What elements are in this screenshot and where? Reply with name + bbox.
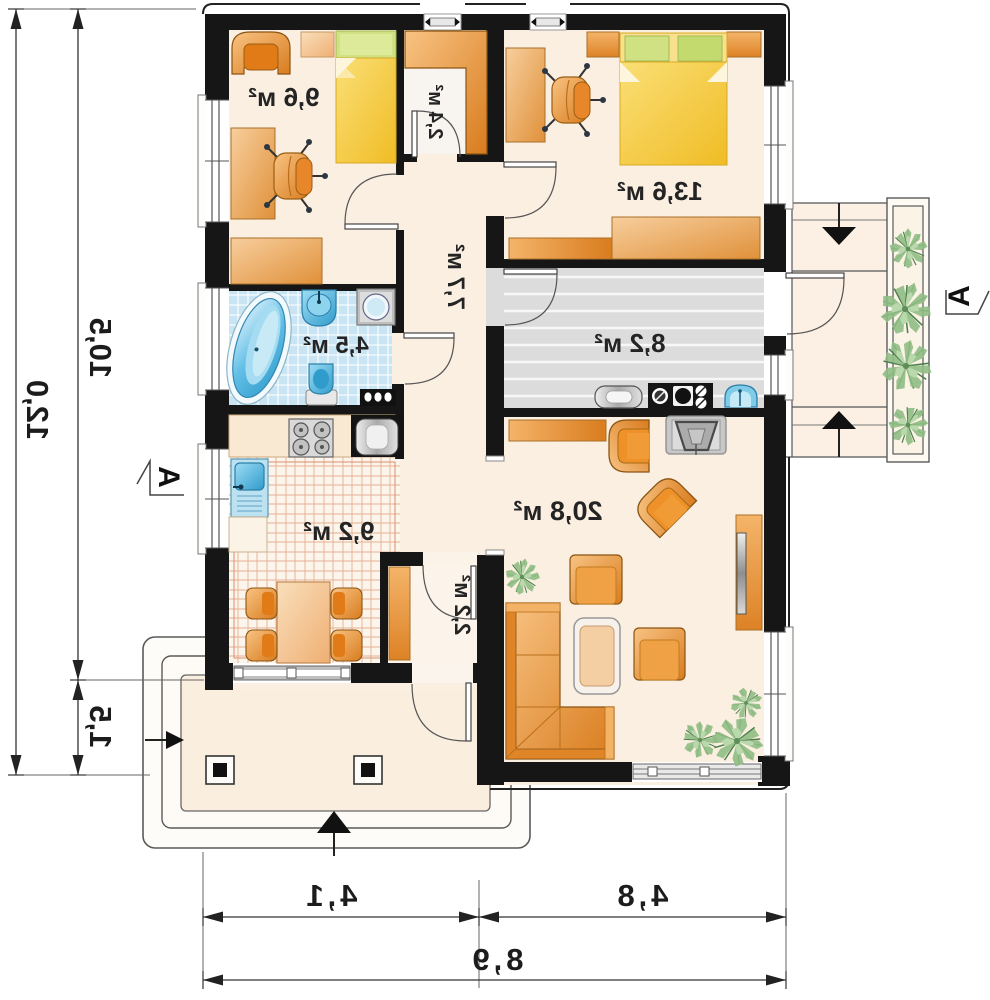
svg-text:4,5 м²: 4,5 м²: [303, 332, 369, 359]
svg-text:10,5: 10,5: [83, 318, 118, 378]
svg-text:20,8 м²: 20,8 м²: [513, 496, 602, 526]
svg-text:A: A: [152, 466, 185, 488]
svg-text:9,2 м²: 9,2 м²: [303, 516, 375, 546]
svg-text:9,6 м²: 9,6 м²: [248, 82, 320, 112]
svg-text:7,7 м²: 7,7 м²: [442, 244, 469, 310]
svg-text:1,5: 1,5: [83, 705, 118, 748]
svg-text:8,9: 8,9: [468, 942, 523, 977]
svg-text:2,4 м²: 2,4 м²: [424, 84, 446, 139]
svg-text:12,0: 12,0: [20, 380, 55, 440]
svg-text:13,6 м²: 13,6 м²: [617, 176, 703, 206]
svg-text:4,8: 4,8: [613, 878, 668, 913]
svg-text:A: A: [943, 285, 976, 307]
svg-text:2,2 м²: 2,2 м²: [450, 575, 475, 635]
svg-text:4,1: 4,1: [302, 878, 357, 913]
svg-text:8,2 м²: 8,2 м²: [594, 328, 666, 358]
